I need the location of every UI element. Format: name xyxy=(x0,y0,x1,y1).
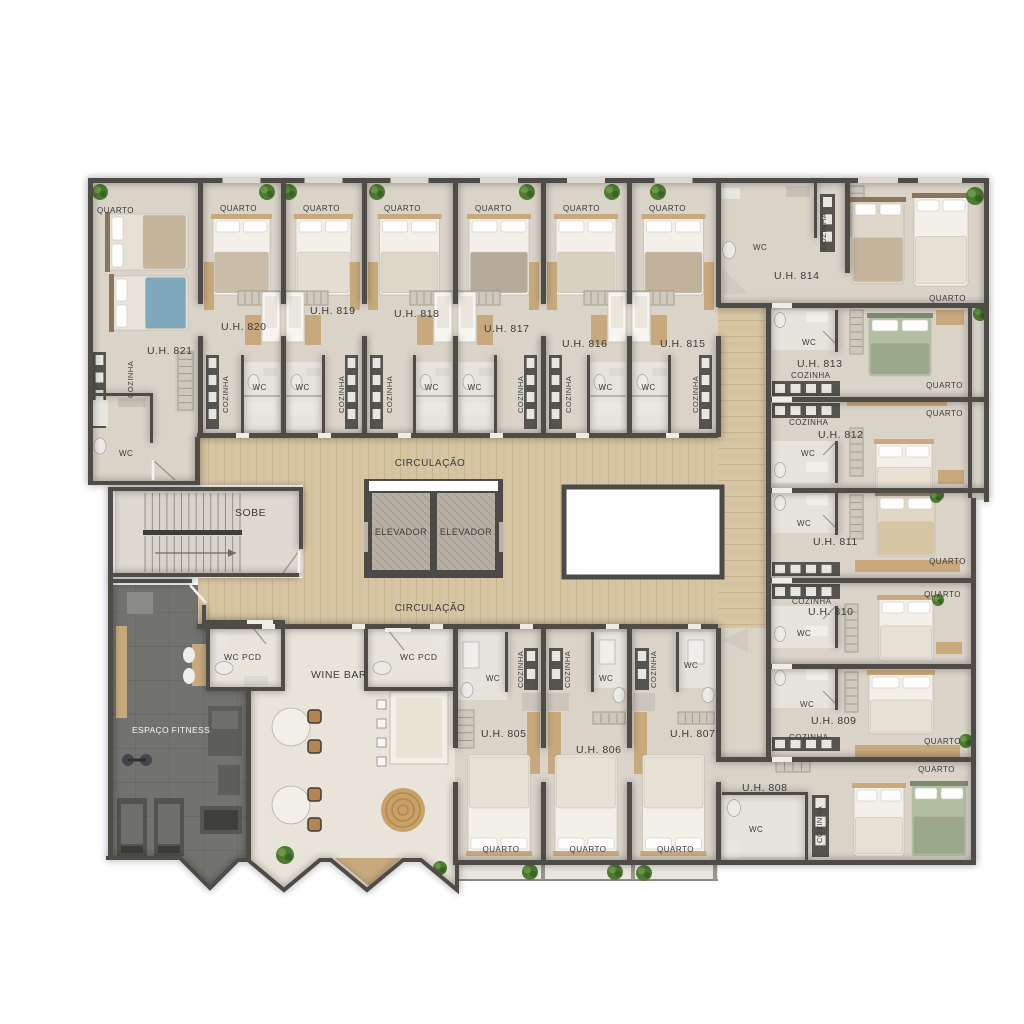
svg-text:QUARTO: QUARTO xyxy=(929,557,966,566)
svg-text:COZINHA: COZINHA xyxy=(516,376,525,413)
svg-text:COZINHA: COZINHA xyxy=(791,371,831,380)
svg-text:WC: WC xyxy=(753,243,767,252)
svg-text:COZINHA: COZINHA xyxy=(789,418,829,427)
svg-text:WC: WC xyxy=(801,449,815,458)
svg-text:WC: WC xyxy=(599,674,613,683)
svg-text:QUARTO: QUARTO xyxy=(570,845,607,854)
svg-text:WC: WC xyxy=(800,700,814,709)
svg-text:CIRCULAÇÃO: CIRCULAÇÃO xyxy=(395,601,466,614)
svg-text:QUARTO: QUARTO xyxy=(303,204,340,213)
svg-text:SOBE: SOBE xyxy=(235,507,266,519)
svg-text:WC: WC xyxy=(802,338,816,347)
svg-text:U.H. 820: U.H. 820 xyxy=(221,321,266,333)
svg-text:QUARTO: QUARTO xyxy=(657,845,694,854)
svg-text:QUARTO: QUARTO xyxy=(649,204,686,213)
svg-text:CIRCULAÇÃO: CIRCULAÇÃO xyxy=(395,456,466,469)
svg-text:U.H. 805: U.H. 805 xyxy=(481,728,526,740)
svg-text:QUARTO: QUARTO xyxy=(918,765,955,774)
svg-text:COZINHA: COZINHA xyxy=(221,376,230,413)
svg-text:QUARTO: QUARTO xyxy=(384,204,421,213)
svg-text:U.H. 815: U.H. 815 xyxy=(660,338,705,350)
svg-text:WC: WC xyxy=(749,825,763,834)
svg-text:U.H. 807: U.H. 807 xyxy=(670,728,715,740)
svg-text:ESPAÇO FITNESS: ESPAÇO FITNESS xyxy=(132,725,210,735)
svg-text:COZINHA: COZINHA xyxy=(564,376,573,413)
svg-text:WC: WC xyxy=(119,449,133,458)
svg-text:U.H. 809: U.H. 809 xyxy=(811,715,856,727)
svg-text:U.H. 812: U.H. 812 xyxy=(818,429,863,441)
svg-text:QUARTO: QUARTO xyxy=(929,294,966,303)
svg-text:U.H. 818: U.H. 818 xyxy=(394,308,439,320)
svg-text:WC: WC xyxy=(684,661,698,670)
svg-text:U.H. 819: U.H. 819 xyxy=(310,305,355,317)
svg-text:U.H. 811: U.H. 811 xyxy=(813,536,858,548)
svg-text:COZINHA: COZINHA xyxy=(649,651,658,688)
svg-text:WC PCD: WC PCD xyxy=(224,652,261,662)
svg-text:U.H. 817: U.H. 817 xyxy=(484,323,529,335)
svg-text:ELEVADOR: ELEVADOR xyxy=(375,527,427,537)
svg-text:QUARTO: QUARTO xyxy=(563,204,600,213)
svg-text:WC: WC xyxy=(253,383,267,392)
svg-text:ELEVADOR: ELEVADOR xyxy=(440,527,492,537)
svg-text:COZINHA: COZINHA xyxy=(819,213,828,250)
svg-text:QUARTO: QUARTO xyxy=(483,845,520,854)
svg-text:COZINHA: COZINHA xyxy=(691,376,700,413)
svg-text:WC: WC xyxy=(425,383,439,392)
svg-text:U.H. 806: U.H. 806 xyxy=(576,744,621,756)
svg-text:COZINHA: COZINHA xyxy=(815,806,824,843)
svg-text:WC: WC xyxy=(797,519,811,528)
svg-text:COZINHA: COZINHA xyxy=(126,361,135,398)
svg-text:WC: WC xyxy=(642,383,656,392)
svg-text:QUARTO: QUARTO xyxy=(926,381,963,390)
svg-text:U.H. 816: U.H. 816 xyxy=(562,338,607,350)
svg-text:QUARTO: QUARTO xyxy=(926,409,963,418)
svg-text:COZINHA: COZINHA xyxy=(789,733,829,742)
svg-text:QUARTO: QUARTO xyxy=(924,590,961,599)
svg-text:QUARTO: QUARTO xyxy=(475,204,512,213)
svg-text:U.H. 813: U.H. 813 xyxy=(797,358,842,370)
svg-text:COZINHA: COZINHA xyxy=(337,376,346,413)
svg-text:WC PCD: WC PCD xyxy=(400,652,437,662)
svg-text:WC: WC xyxy=(797,629,811,638)
svg-text:WC: WC xyxy=(599,383,613,392)
svg-text:COZINHA: COZINHA xyxy=(516,651,525,688)
svg-text:U.H. 810: U.H. 810 xyxy=(808,606,853,618)
svg-text:WINE BAR: WINE BAR xyxy=(311,669,367,681)
svg-text:COZINHA: COZINHA xyxy=(385,376,394,413)
svg-text:WC: WC xyxy=(296,383,310,392)
svg-text:U.H. 821: U.H. 821 xyxy=(147,345,192,357)
svg-text:WC: WC xyxy=(468,383,482,392)
svg-text:QUARTO: QUARTO xyxy=(97,206,134,215)
svg-text:COZINHA: COZINHA xyxy=(792,597,832,606)
svg-text:QUARTO: QUARTO xyxy=(220,204,257,213)
svg-text:WC: WC xyxy=(486,674,500,683)
svg-text:COZINHA: COZINHA xyxy=(563,651,572,688)
svg-text:U.H. 808: U.H. 808 xyxy=(742,782,787,794)
svg-text:U.H. 814: U.H. 814 xyxy=(774,270,819,282)
svg-text:QUARTO: QUARTO xyxy=(924,737,961,746)
